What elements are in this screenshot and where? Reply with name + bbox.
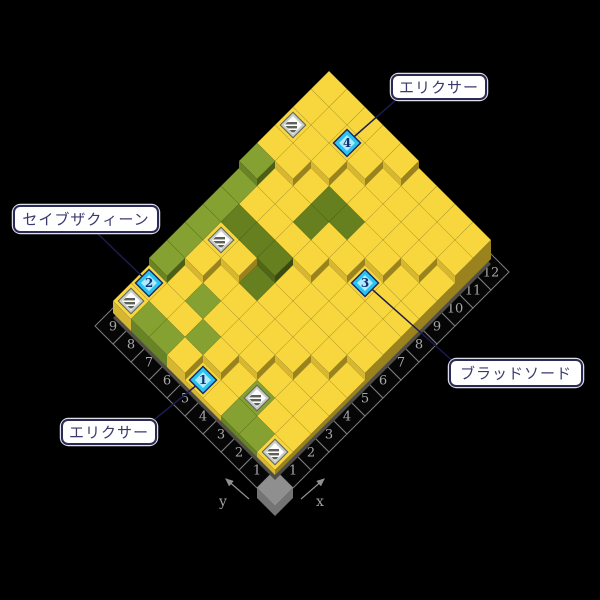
svg-text:9: 9 (109, 320, 117, 335)
item-label-text: セイブザクィーン (22, 211, 149, 229)
svg-text:4: 4 (343, 410, 351, 425)
svg-text:6: 6 (163, 374, 171, 389)
svg-text:7: 7 (397, 356, 405, 371)
svg-text:9: 9 (433, 320, 441, 335)
item-label-blood-sword: ブラッドソード (449, 359, 584, 388)
svg-text:1: 1 (289, 464, 297, 479)
marker-number: 3 (361, 276, 369, 290)
svg-text:7: 7 (145, 356, 153, 371)
svg-text:4: 4 (199, 410, 207, 425)
item-label-elixir-bottom: エリクサー (61, 419, 158, 446)
map-viewer: 123456789101112123456789xy1234エリクサーセイブザク… (0, 0, 600, 600)
item-label-text: エリクサー (69, 424, 149, 442)
svg-text:6: 6 (379, 374, 387, 389)
svg-text:8: 8 (127, 338, 135, 353)
svg-text:3: 3 (217, 428, 225, 443)
item-label-elixir-top: エリクサー (391, 74, 488, 101)
item-label-text: エリクサー (399, 79, 479, 97)
isometric-map: 123456789101112123456789xy1234エリクサーセイブザク… (0, 0, 600, 600)
item-label-save-the-queen: セイブザクィーン (13, 205, 160, 234)
marker-number: 2 (145, 276, 153, 290)
svg-text:2: 2 (307, 446, 315, 461)
svg-text:2: 2 (235, 446, 243, 461)
x-axis-label: x (316, 494, 324, 510)
svg-text:1: 1 (253, 464, 261, 479)
item-label-text: ブラッドソード (460, 365, 572, 383)
svg-text:5: 5 (361, 392, 369, 407)
marker-number: 4 (343, 136, 351, 150)
marker-number: 1 (199, 373, 207, 387)
svg-text:8: 8 (415, 338, 423, 353)
y-axis-label: y (218, 494, 227, 510)
svg-text:3: 3 (325, 428, 333, 443)
